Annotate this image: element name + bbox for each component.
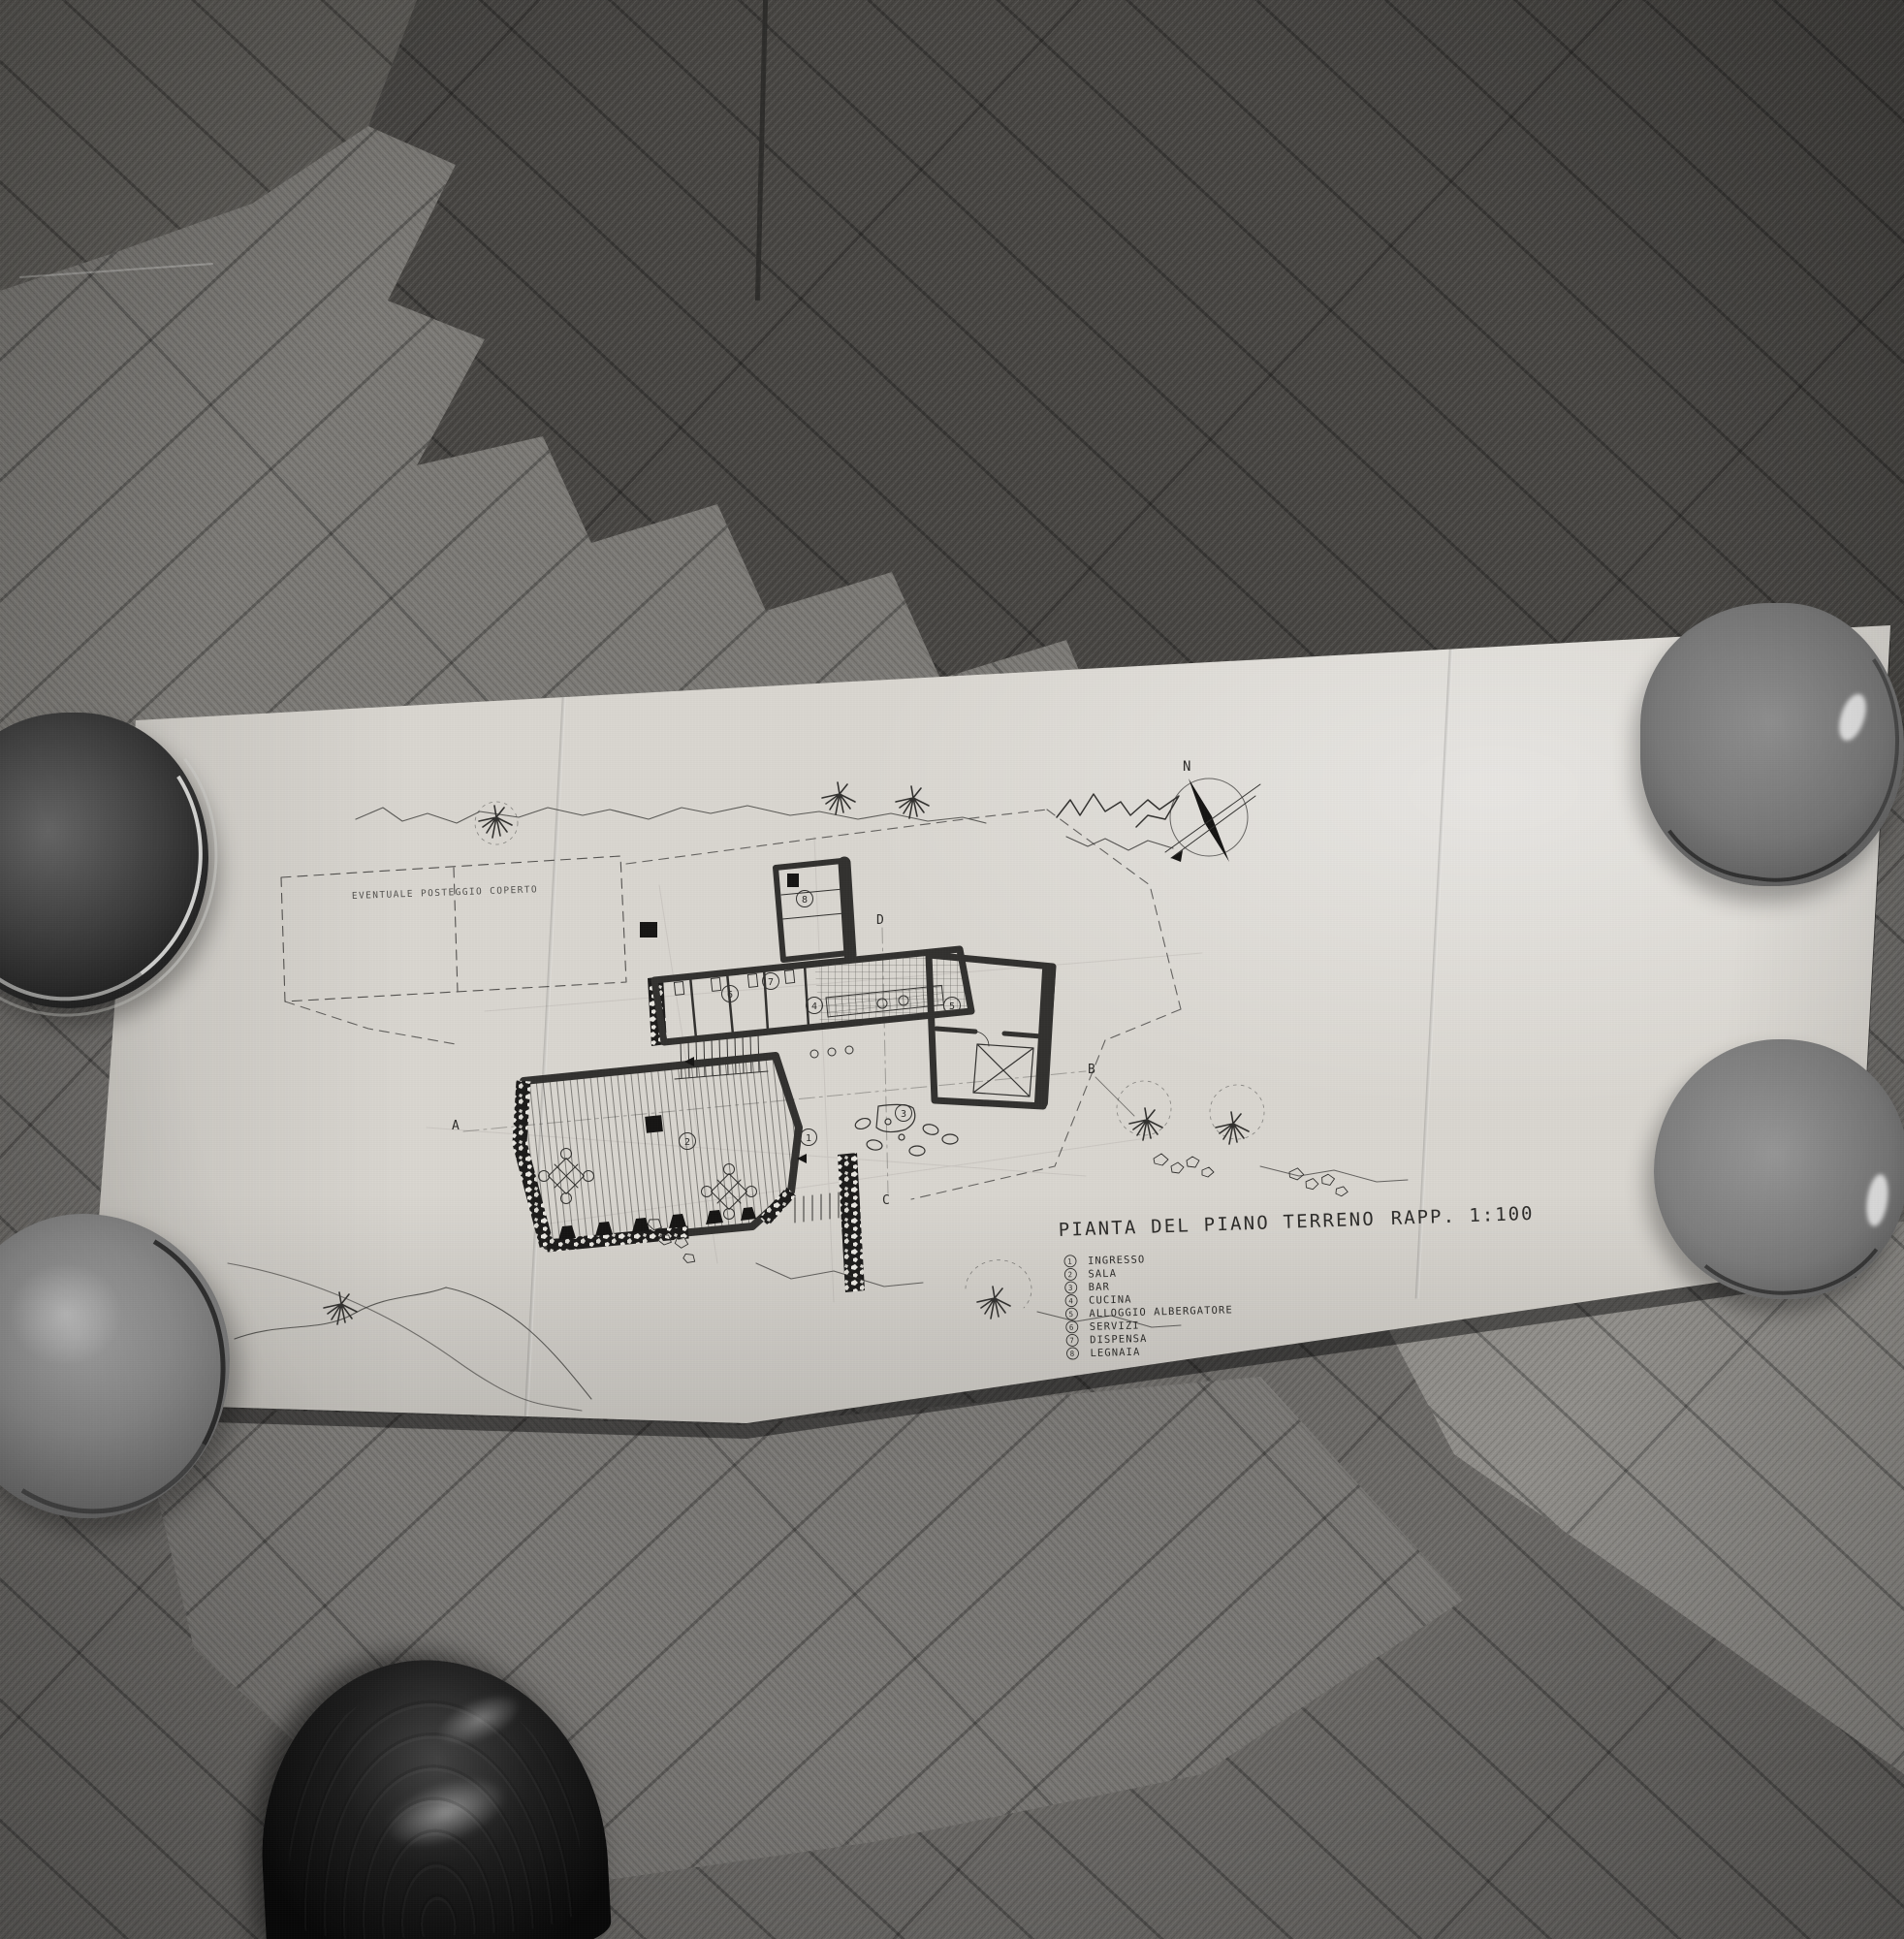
legend: 1 2 3 4 5 6 7 8 INGRESSO SALA BAR CUCINA… [1064,1251,1234,1359]
building-plan [520,861,1053,1292]
room-number: 8 [802,895,808,906]
legend-num: 7 [1069,1336,1075,1345]
ceramic-bowl-top-left [0,713,208,1008]
legend-num: 4 [1068,1296,1074,1305]
ceramic-bowl-top-right [1640,603,1904,886]
legend-label: LEGNAIA [1090,1347,1140,1359]
legend-label: DISPENSA [1090,1333,1148,1347]
room-number: 5 [949,1001,955,1012]
legend-label: ALLOGGIO ALBERGATORE [1089,1304,1233,1319]
stone-pillar [838,1153,865,1292]
photo-floor-plan-on-parquet: EVENTUALE POSTEGGIO COPERTO [0,0,1904,1939]
compass-rose: N [1165,759,1260,862]
woodshed-walls [776,861,848,960]
section-marker-a: A [452,1119,460,1133]
legend-num: 8 [1070,1350,1076,1358]
parking-note-label: EVENTUALE POSTEGGIO COPERTO [352,884,539,902]
legend-label: INGRESSO [1088,1254,1146,1267]
room-number: 6 [727,990,733,1001]
section-marker-c: C [882,1193,890,1208]
parking-dashed-outline [281,856,626,1001]
room-number: 7 [768,977,774,988]
legend-label: CUCINA [1089,1293,1132,1306]
bed-crossed [973,1044,1033,1097]
room-number: 1 [806,1133,811,1144]
drawing-scale: RAPP. 1:100 [1390,1203,1535,1229]
legend-num: 5 [1069,1310,1075,1319]
drawing-title: PIANTA DEL PIANO TERRENO [1058,1209,1376,1241]
legend-num: 2 [1067,1270,1073,1279]
shoe-wrinkles [281,1676,584,1939]
room-number: 3 [901,1109,906,1120]
title-block: PIANTA DEL PIANO TERRENO RAPP. 1:100 [1058,1203,1535,1241]
room-number: 4 [811,1001,817,1012]
room-number: 2 [684,1137,690,1148]
section-marker-d: D [876,913,884,928]
thick-wall [844,863,850,955]
site-terrain-sketch-top [356,782,1179,850]
legend-num: 1 [1067,1257,1073,1266]
legend-label: BAR [1089,1281,1111,1293]
legend-num: 3 [1068,1284,1074,1292]
site-trees-right [1095,1077,1408,1196]
section-marker-b: B [1088,1063,1095,1077]
legend-label: SERVIZI [1090,1319,1140,1332]
legend-num: 6 [1069,1323,1075,1332]
ceramic-bowl-right-middle [1654,1039,1904,1299]
compass-north-label: N [1183,759,1190,775]
legend-label: SALA [1088,1268,1117,1281]
